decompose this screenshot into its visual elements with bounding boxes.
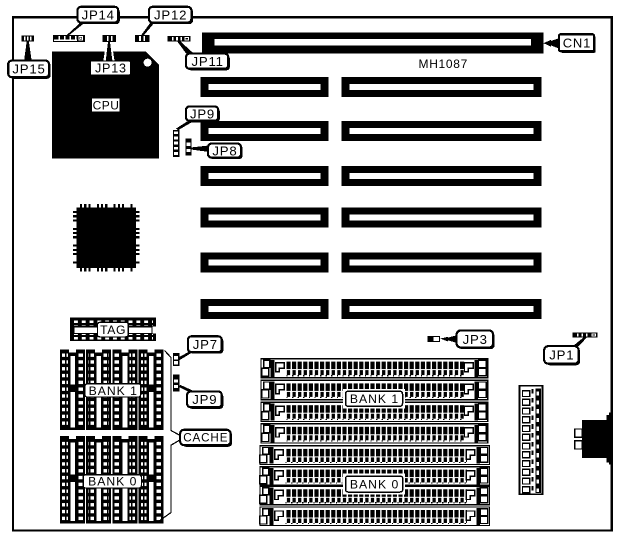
svg-text:JP11: JP11 <box>191 54 223 69</box>
svg-text:JP8: JP8 <box>212 143 237 158</box>
svg-text:JP7: JP7 <box>193 337 218 352</box>
svg-text:JP9: JP9 <box>190 106 215 121</box>
svg-text:JP14: JP14 <box>82 7 115 22</box>
svg-text:CPU: CPU <box>93 98 120 112</box>
svg-text:JP12: JP12 <box>154 7 187 22</box>
svg-text:BANK 0: BANK 0 <box>88 475 137 489</box>
svg-text:CACHE: CACHE <box>183 432 228 445</box>
svg-text:CN1: CN1 <box>563 35 591 50</box>
svg-text:JP15: JP15 <box>12 62 45 77</box>
svg-text:JP1: JP1 <box>549 348 574 363</box>
svg-text:BANK 0: BANK 0 <box>350 477 399 491</box>
svg-text:JP9: JP9 <box>192 392 217 407</box>
svg-text:TAG: TAG <box>100 323 126 337</box>
svg-text:MH1087: MH1087 <box>419 57 469 71</box>
svg-text:BANK 1: BANK 1 <box>89 384 138 398</box>
svg-text:JP3: JP3 <box>463 332 488 347</box>
svg-text:BANK 1: BANK 1 <box>350 392 399 406</box>
svg-text:JP13: JP13 <box>95 62 127 76</box>
